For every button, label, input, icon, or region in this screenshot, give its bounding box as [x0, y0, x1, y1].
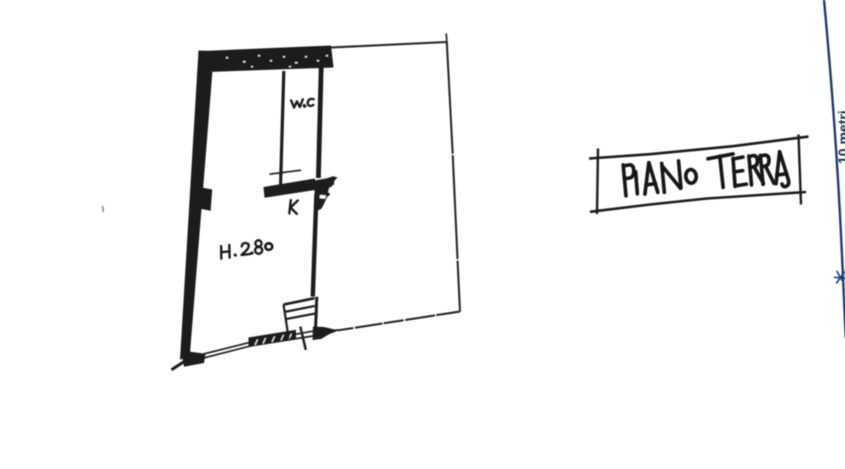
svg-text:10 metri: 10 metri: [835, 110, 845, 164]
